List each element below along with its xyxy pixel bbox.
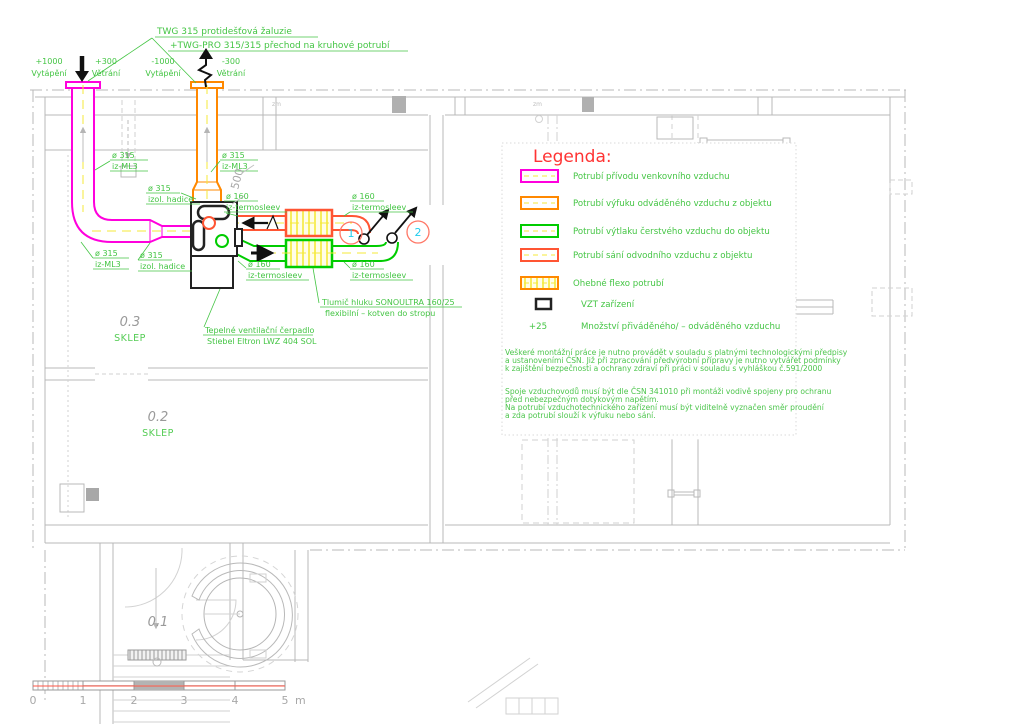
stairwell-wing bbox=[100, 543, 558, 724]
flow-value-2: +300 bbox=[95, 57, 117, 66]
scale-tick-4: 4 bbox=[232, 694, 239, 707]
top-note-line1: TWG 315 protidešťová žaluzie bbox=[156, 26, 292, 37]
heat-pump-label-line1: Tepelné ventilační čerpadlo bbox=[204, 325, 315, 335]
intake-arrow-icon bbox=[75, 56, 89, 82]
label-dn315: ø 315 bbox=[222, 151, 245, 160]
label-dn160: ø 160 bbox=[248, 260, 271, 269]
label-izml3: iz-ML3 bbox=[112, 162, 138, 171]
legend-swatch-vzt-unit bbox=[536, 299, 551, 309]
room-number-0-3: 0.3 bbox=[120, 315, 141, 330]
room-number-0-2: 0.2 bbox=[148, 410, 169, 425]
label-termosleev: iz-termosleev bbox=[248, 271, 302, 280]
duct-marker-2: 2 bbox=[415, 226, 422, 239]
flow-label-1: Vytápění bbox=[31, 69, 67, 78]
room-name-0-2: SKLEP bbox=[142, 428, 174, 439]
scale-tick-0: 0 bbox=[30, 694, 37, 707]
window-symbol-bottom bbox=[668, 490, 700, 497]
legend-label-extract: Potrubí sání odvodního vzduchu z objektu bbox=[573, 251, 752, 261]
unit-side-opening bbox=[193, 221, 204, 250]
legend-label-exhaust: Potrubí výfuku odváděného vzduchu z obje… bbox=[573, 198, 772, 209]
unit-right-tab bbox=[235, 229, 242, 246]
legend-label-vzt-unit: VZT zařízení bbox=[581, 300, 635, 310]
scale-tick-1: 1 bbox=[80, 694, 87, 707]
label-dn315: ø 315 bbox=[112, 151, 135, 160]
flow-value-3: -1000 bbox=[151, 57, 174, 66]
label-izml3: iz-ML3 bbox=[95, 260, 121, 269]
hvac-floor-plan-drawing: zm zm bbox=[0, 0, 1024, 724]
scale-bar: 0 1 2 3 4 5 m bbox=[30, 681, 306, 707]
unit-top-opening bbox=[198, 206, 229, 219]
supply-port bbox=[216, 235, 228, 247]
flow-label-2: Větrání bbox=[92, 69, 121, 78]
valve-arrow-1 bbox=[367, 210, 388, 235]
label-dn160: ø 160 bbox=[226, 192, 249, 201]
flow-label-4: Větrání bbox=[217, 69, 246, 78]
duct-system: 1 2 bbox=[66, 82, 429, 267]
top-wall-ticks bbox=[263, 96, 772, 150]
room-name-0-3: SKLEP bbox=[114, 333, 146, 344]
label-dn315: ø 315 bbox=[148, 184, 171, 193]
scale-unit: m bbox=[295, 694, 306, 707]
label-izol-hadice: izol. hadice bbox=[140, 262, 185, 271]
legend-label-flex: Ohebné flexo potrubí bbox=[573, 278, 664, 289]
flow-label-3: Vytápění bbox=[145, 69, 181, 78]
shaft-label: zm bbox=[272, 101, 281, 108]
label-dn160: ø 160 bbox=[352, 192, 375, 201]
scale-tick-2: 2 bbox=[131, 694, 138, 707]
room-number-0-1: 0.1 bbox=[148, 615, 169, 630]
extract-port bbox=[203, 217, 215, 229]
notes-para2-line4: a zda potrubí slouží k výfuku nebo sání. bbox=[505, 411, 656, 420]
flow-value-4: -300 bbox=[222, 57, 240, 66]
label-termosleev: iz-termosleev bbox=[226, 203, 280, 212]
label-termosleev: iz-termosleev bbox=[352, 203, 406, 212]
annotations: TWG 315 protidešťová žaluzie +TWG-PRO 31… bbox=[31, 26, 462, 630]
duct-end-valve-2 bbox=[387, 233, 397, 243]
silencer-label-line1: Tlumič hluku SONOULTRA 160/25 bbox=[321, 297, 455, 307]
legend-title: Legenda: bbox=[533, 147, 612, 167]
flow-value-1: +1000 bbox=[35, 57, 62, 66]
top-note-line2: +TWG-PRO 315/315 přechod na kruhové potr… bbox=[170, 40, 390, 51]
notes-para1-line3: k zajištění bezpečnosti a ochrany zdraví… bbox=[505, 364, 822, 373]
heat-pump-label-line2: Stiebel Eltron LWZ 404 SOL bbox=[207, 337, 317, 346]
heat-pump-label: Tepelné ventilační čerpadlo Stiebel Eltr… bbox=[203, 289, 317, 346]
scale-tick-5: 5 bbox=[282, 694, 289, 707]
label-izol-hadice: izol. hadice bbox=[148, 195, 193, 204]
scale-tick-3: 3 bbox=[181, 694, 188, 707]
label-dn160: ø 160 bbox=[352, 260, 375, 269]
label-dn315: ø 315 bbox=[95, 249, 118, 258]
silencer-supply bbox=[286, 240, 332, 267]
legend-label-amount: Množství přiváděného/ – odváděného vzduc… bbox=[581, 321, 780, 332]
shaft-label: zm bbox=[533, 101, 542, 108]
duct-marker-1: 1 bbox=[348, 227, 355, 240]
legend-symbol-amount: +25 bbox=[529, 322, 547, 332]
label-termosleev: iz-termosleev bbox=[352, 271, 406, 280]
silencer-label-line2: flexibilní – kotven do stropu bbox=[325, 309, 435, 318]
legend-label-supply-outdoor: Potrubí přívodu venkovního vzduchu bbox=[573, 172, 730, 182]
legend-label-fresh: Potrubí výtlaku čerstvého vzduchu do obj… bbox=[573, 226, 770, 237]
